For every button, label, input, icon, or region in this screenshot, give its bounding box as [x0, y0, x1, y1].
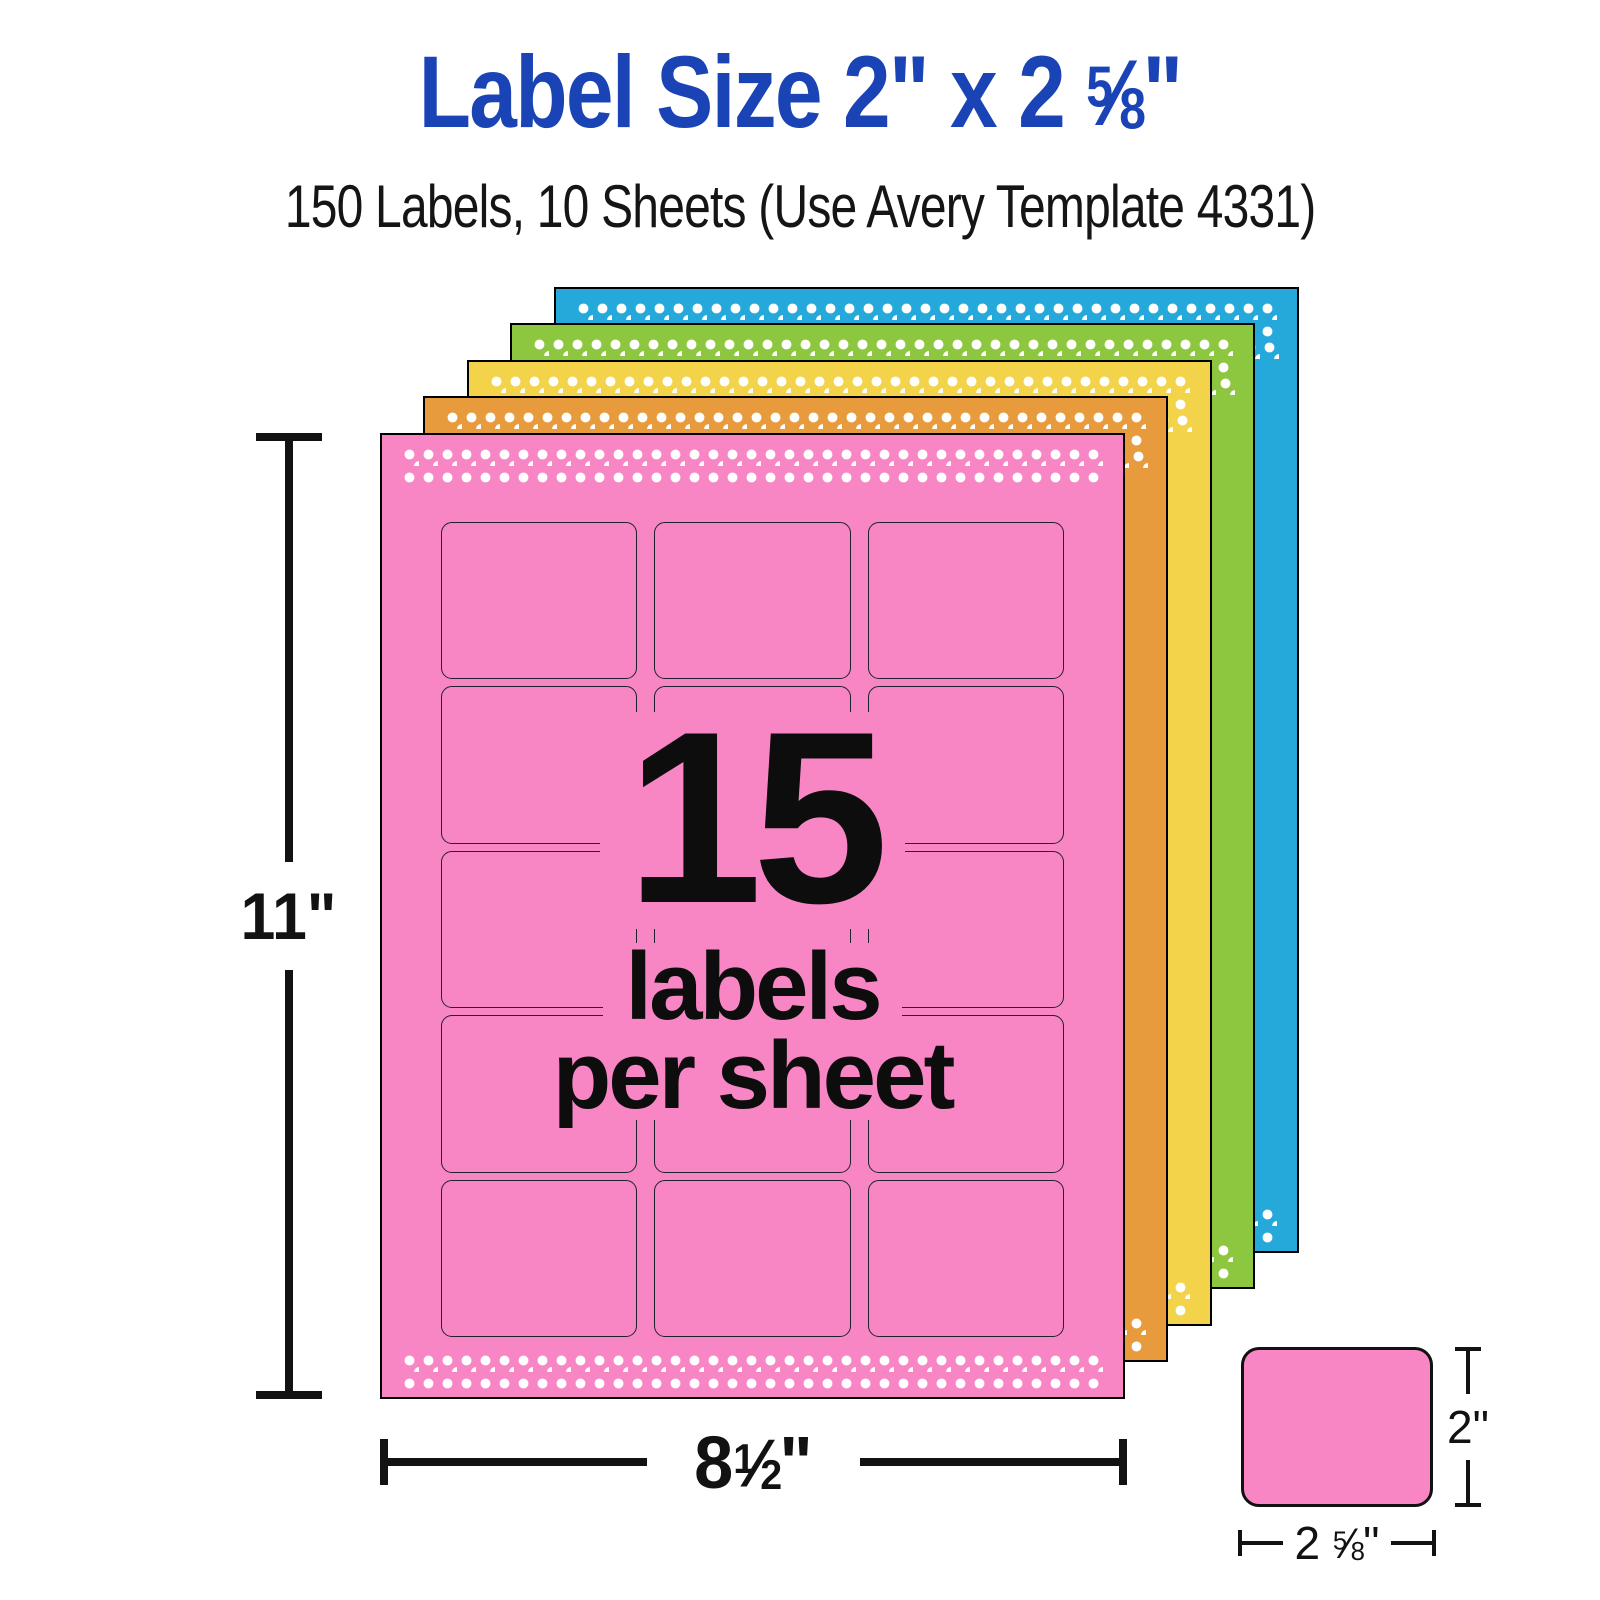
sheet-caption: 15 labels per sheet: [382, 435, 1123, 1397]
sheet-pink-front: 15 labels per sheet: [380, 433, 1125, 1399]
page-subtitle: 150 Labels, 10 Sheets (Use Avery Templat…: [0, 172, 1600, 241]
dimension-cap-bottom: [1455, 1503, 1481, 1507]
sheet-height-dimension: 11": [256, 433, 322, 1399]
title-suffix: ": [1142, 35, 1181, 149]
dimension-line: [1242, 1541, 1283, 1545]
dimension-cap-left: [380, 1439, 388, 1485]
label-height-value: 2": [1447, 1394, 1489, 1460]
label-width-value: 2 5⁄8": [1283, 1516, 1392, 1570]
dimension-cap-top: [256, 433, 322, 441]
sheet-height-value: 11": [241, 862, 337, 970]
dimension-line: [1391, 1541, 1432, 1545]
title-fraction: 5⁄8: [1086, 35, 1142, 149]
dimension-line: [285, 970, 293, 1391]
label-width-fraction: 5⁄8: [1333, 1517, 1363, 1569]
dimension-line: [1466, 1460, 1470, 1503]
dimension-line: [1466, 1351, 1470, 1394]
dimension-cap-right: [1432, 1530, 1436, 1556]
label-height-dimension: 2": [1446, 1347, 1490, 1507]
title-text: Label Size 2" x 2: [419, 35, 1087, 149]
sheet-width-value: 81⁄2": [652, 1420, 854, 1505]
page-title: Label Size 2" x 2 5⁄8": [0, 34, 1600, 151]
per-sheet-word: per sheet: [531, 1032, 975, 1120]
dimension-cap-bottom: [256, 1391, 322, 1399]
dimension-cap-right: [1119, 1439, 1127, 1485]
dimension-line: [388, 1458, 647, 1466]
labels-count: 15: [600, 712, 905, 929]
subtitle-text: 150 Labels, 10 Sheets (Use Avery Templat…: [285, 172, 1316, 241]
single-label-swatch: [1241, 1347, 1433, 1507]
label-width-dimension: 2 5⁄8": [1238, 1520, 1436, 1566]
dimension-line: [860, 1458, 1119, 1466]
dimension-line: [285, 441, 293, 862]
sheet-width-dimension: 81⁄2": [380, 1430, 1127, 1494]
labels-word: labels: [603, 943, 901, 1031]
width-fraction: 1⁄2: [733, 1421, 779, 1504]
